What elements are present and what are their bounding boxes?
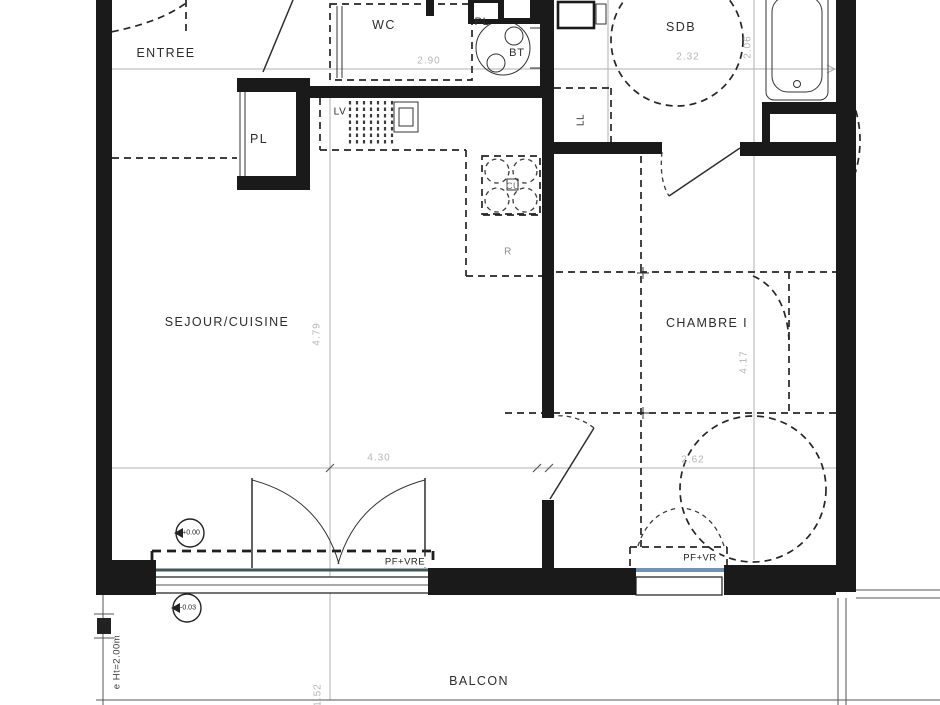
left-wall bbox=[96, 0, 112, 578]
bottom-wall bbox=[428, 568, 636, 595]
entry-door-leaf bbox=[263, 0, 293, 72]
dishwasher-label: LV bbox=[334, 107, 347, 118]
dim-balcon-depth: 1.52 bbox=[313, 683, 324, 705]
bedroom-window-tag: PF+VR bbox=[680, 553, 719, 564]
closet-label-sdb: PL bbox=[474, 16, 489, 28]
bedroom-window-swing-left bbox=[638, 508, 679, 546]
sejour-chambre-wall bbox=[542, 86, 554, 418]
level-balcony: -0.03 bbox=[180, 605, 196, 612]
room-label-chambre: CHAMBRE I bbox=[666, 316, 748, 330]
separator-symbol bbox=[97, 618, 111, 634]
chambre-door-arc bbox=[553, 416, 594, 428]
dishwasher-hatch bbox=[350, 101, 392, 145]
sdb-door-leaf bbox=[669, 148, 740, 196]
floor-plan: ENTREE WC SDB SEJOUR/CUISINE CHAMBRE I B… bbox=[0, 0, 940, 705]
sdb-wall bbox=[542, 142, 662, 154]
dim-chambre-width: 2.62 bbox=[681, 455, 704, 466]
door-leaves bbox=[252, 0, 740, 568]
walls bbox=[96, 0, 856, 595]
right-wall bbox=[836, 0, 856, 592]
chambre-turning-circle bbox=[680, 416, 826, 562]
dim-sdb-width: 2.32 bbox=[676, 52, 699, 63]
kitchen-back-wall bbox=[310, 86, 554, 98]
bedroom-window-swing-right bbox=[683, 508, 724, 546]
closet-label-entree: PL bbox=[250, 132, 268, 146]
dimension-ticks bbox=[326, 267, 649, 472]
dashed-partitions bbox=[100, 0, 860, 566]
living-window-tag: PF+VRE bbox=[382, 557, 428, 568]
room-label-entree: ENTREE bbox=[136, 46, 195, 60]
sdb-door-arc bbox=[661, 152, 669, 196]
room-label-sdb: SDB bbox=[666, 20, 696, 34]
level-interior: +0.00 bbox=[182, 530, 200, 537]
dim-wc-width: 2.90 bbox=[417, 56, 440, 67]
separator-height-note: e Ht=2.00m bbox=[112, 635, 123, 689]
dim-sejour-depth: 4.79 bbox=[312, 322, 323, 345]
dim-chambre-depth: 4.17 bbox=[739, 350, 750, 373]
bedroom-window-sill bbox=[636, 577, 722, 595]
cooktop-label: CU bbox=[506, 181, 520, 191]
dim-sdb-depth: 2.06 bbox=[743, 35, 754, 58]
balcony-lines bbox=[94, 590, 940, 705]
washing-machine-label: LL bbox=[576, 114, 587, 126]
fridge-label: R bbox=[504, 247, 512, 258]
room-label-wc: WC bbox=[372, 18, 396, 32]
dim-sejour-width: 4.30 bbox=[367, 453, 390, 464]
sink bbox=[394, 102, 418, 132]
water-heater-label: BT bbox=[509, 47, 525, 59]
room-label-balcon: BALCON bbox=[449, 674, 509, 688]
chambre-door-leaf bbox=[550, 428, 594, 499]
washbasin bbox=[558, 2, 594, 28]
entry-door-swing-arc bbox=[100, 3, 186, 34]
floor-plan-drawing bbox=[0, 0, 940, 705]
room-label-sejour: SEJOUR/CUISINE bbox=[165, 315, 289, 329]
